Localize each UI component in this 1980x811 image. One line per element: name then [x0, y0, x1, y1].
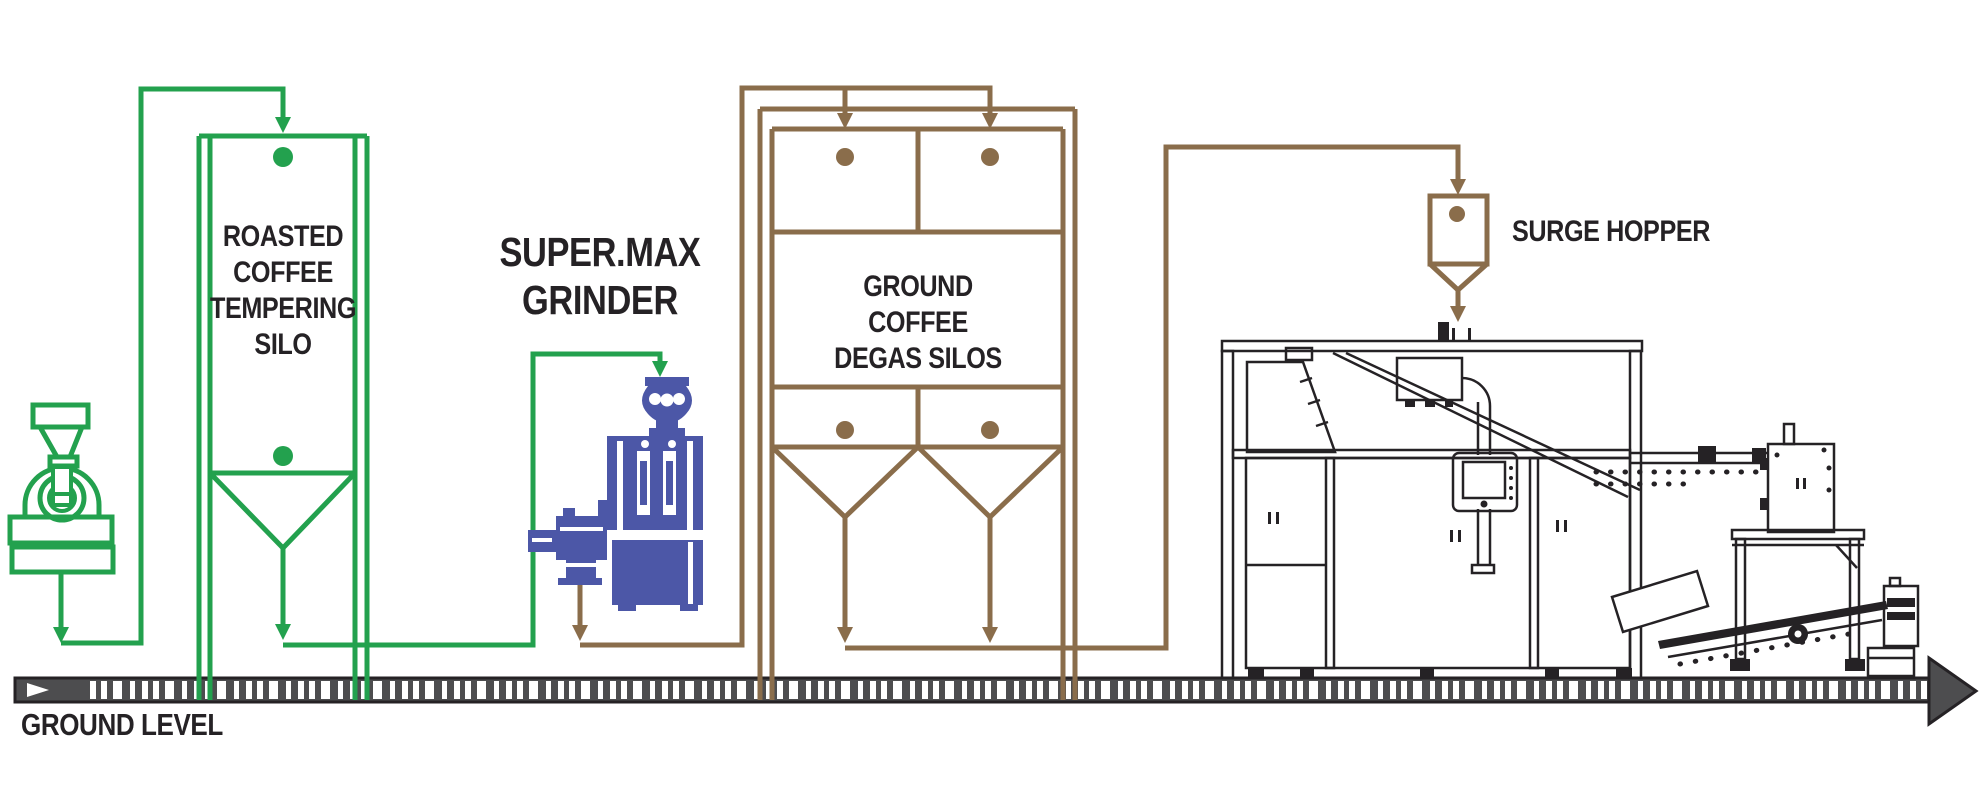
machine-internal-hopper	[1247, 362, 1335, 452]
machine-support-block	[1868, 648, 1914, 676]
bar-end-arrow-icon	[1929, 658, 1976, 724]
diagram-artwork	[0, 0, 1980, 811]
machine-feeder-box	[1397, 358, 1462, 400]
packaging-machine-solids	[1248, 322, 1915, 678]
brown-flow-arrowheads	[572, 113, 1466, 643]
grinder-machine-icon	[528, 377, 703, 611]
level-sensor-dot	[273, 147, 293, 167]
surge-hopper-label: SURGE HOPPER	[1512, 214, 1730, 250]
machine-diagonal-brace	[1346, 353, 1640, 490]
machine-guard-panel	[1612, 571, 1708, 632]
degas-silos-label: GROUND COFFEE DEGAS SILOS	[817, 269, 1019, 377]
ground-level-bar	[15, 658, 1976, 724]
ground-level-label: GROUND LEVEL	[21, 706, 239, 743]
level-sensor-dot	[836, 421, 854, 439]
process-flow-diagram: ROASTED COFFEE TEMPERING SILO SUPER.MAX …	[0, 0, 1980, 811]
grinder-label: SUPER.MAX GRINDER	[498, 228, 703, 325]
coffee-roaster-icon	[10, 405, 113, 572]
machine-cabinet	[1246, 458, 1630, 668]
packaging-machine-drawing	[1222, 341, 1918, 678]
level-sensor-dot	[836, 148, 854, 166]
level-sensor-dot	[273, 446, 293, 466]
machine-left-column	[1222, 351, 1233, 678]
level-sensor-dot	[1449, 206, 1465, 222]
level-sensor-dot	[981, 148, 999, 166]
degas-silos-shape	[760, 109, 1075, 700]
machine-diagonal-brace	[1333, 353, 1628, 497]
level-sensor-dot	[981, 421, 999, 439]
machine-touch-screen	[1463, 462, 1505, 498]
tempering-silo-label: ROASTED COFFEE TEMPERING SILO	[182, 219, 384, 363]
